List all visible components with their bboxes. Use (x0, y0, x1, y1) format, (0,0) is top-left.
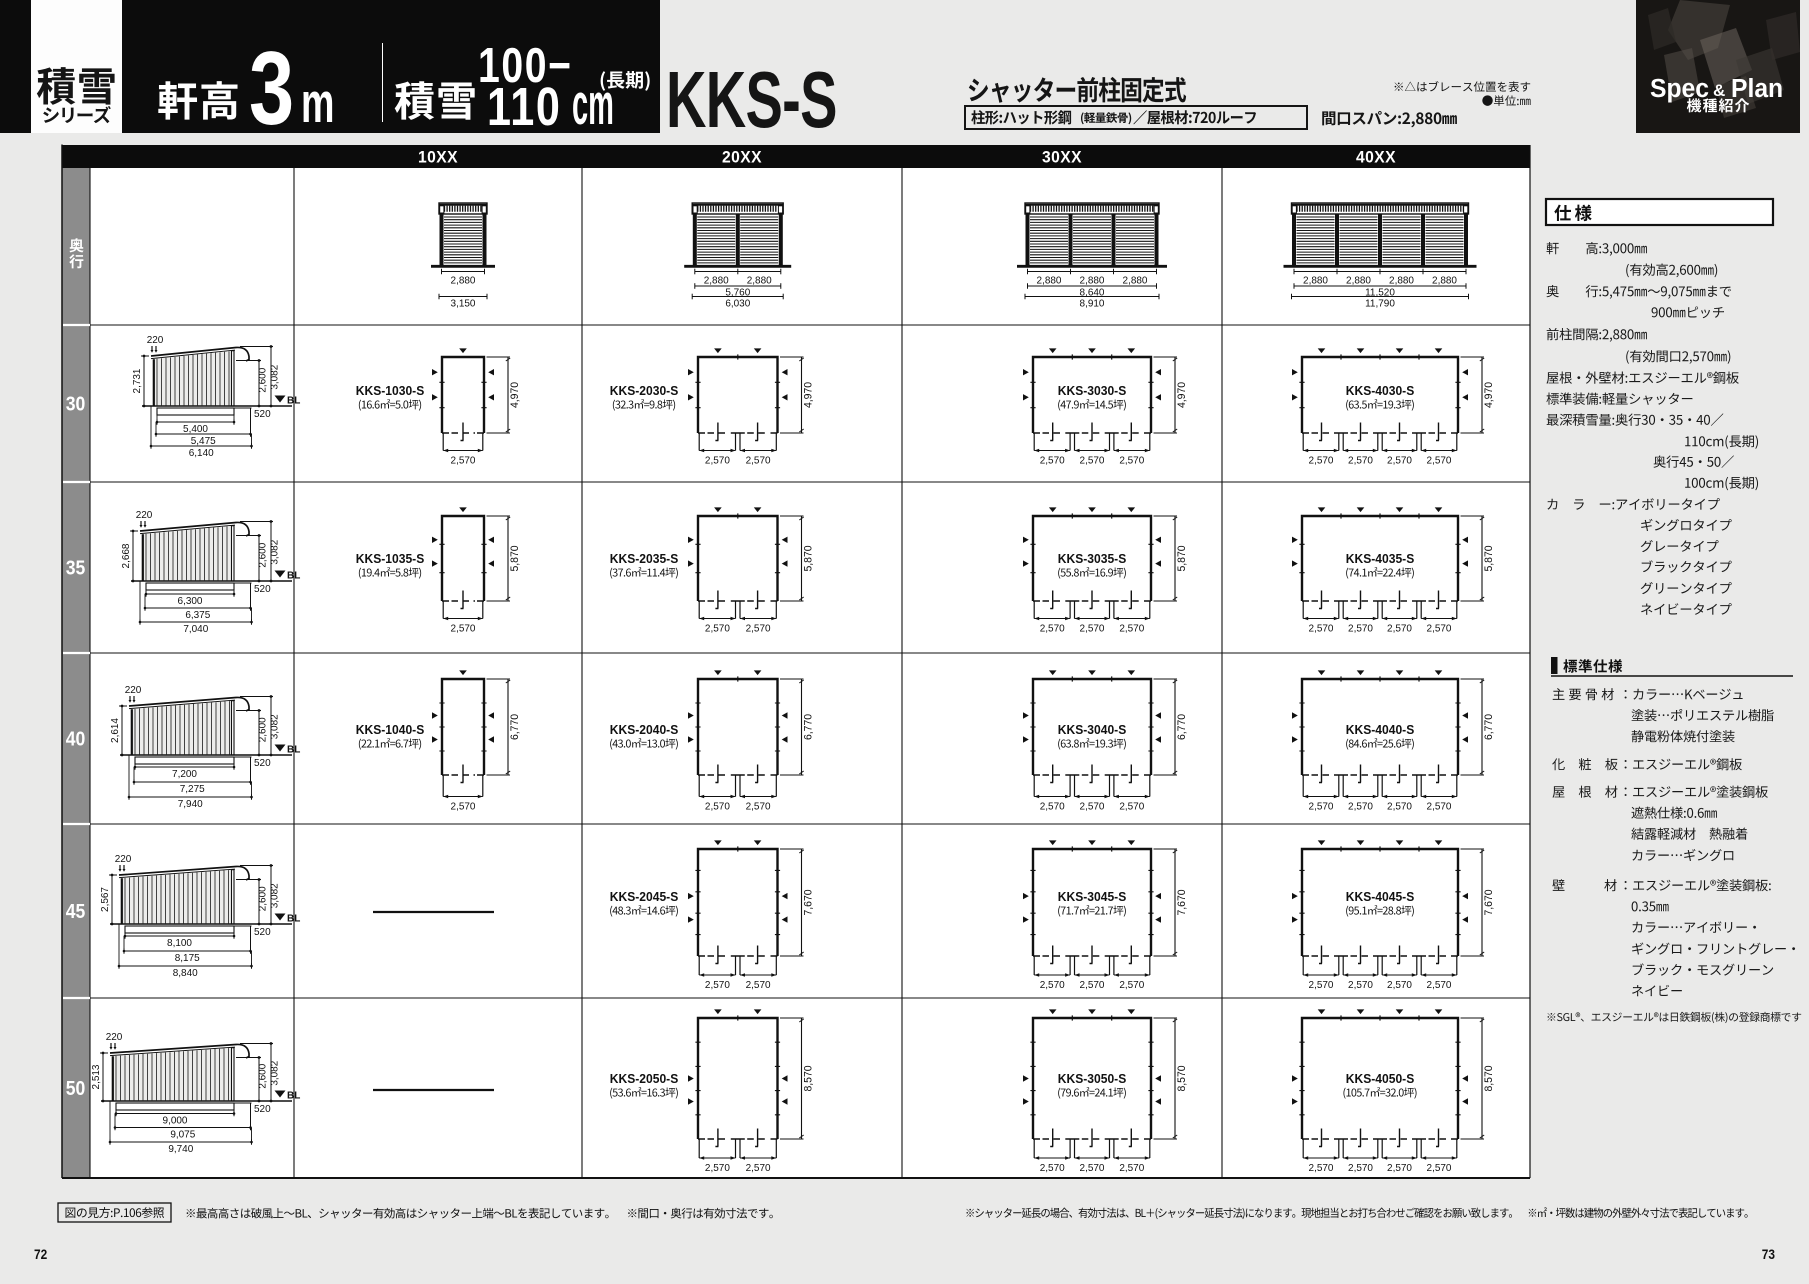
svg-text:2,570: 2,570 (451, 623, 476, 634)
svg-text:m: m (301, 71, 334, 135)
svg-text:2,570: 2,570 (1080, 801, 1105, 812)
svg-text:220: 220 (147, 335, 164, 346)
svg-text:2,570: 2,570 (1309, 801, 1334, 812)
svg-text:520: 520 (254, 1104, 271, 1115)
svg-text:2,570: 2,570 (705, 980, 730, 991)
svg-text:2,570: 2,570 (1348, 1163, 1373, 1174)
svg-text:2,570: 2,570 (1387, 455, 1412, 466)
svg-text:50: 50 (66, 1077, 86, 1099)
svg-text:7,040: 7,040 (183, 624, 208, 635)
svg-text:2,880: 2,880 (451, 275, 476, 286)
svg-text:5,870: 5,870 (1483, 545, 1495, 571)
svg-text:2,570: 2,570 (705, 623, 730, 634)
svg-text:2,880: 2,880 (747, 275, 772, 286)
svg-text:8,570: 8,570 (802, 1065, 814, 1091)
svg-text:2,600: 2,600 (257, 542, 268, 567)
svg-text:2,570: 2,570 (1427, 455, 1452, 466)
svg-text:220: 220 (136, 510, 153, 521)
svg-text:2,880: 2,880 (704, 275, 729, 286)
svg-text:3,082: 3,082 (269, 883, 280, 908)
svg-text:2,570: 2,570 (451, 455, 476, 466)
svg-text:2,570: 2,570 (1119, 980, 1144, 991)
svg-text:KKS-1040-S: KKS-1040-S (356, 723, 425, 737)
svg-text:Spec: Spec (1650, 74, 1709, 103)
svg-text:5,870: 5,870 (509, 545, 521, 571)
svg-text:2,570: 2,570 (451, 801, 476, 812)
svg-text:2,570: 2,570 (746, 1163, 771, 1174)
svg-text:110: 110 (487, 78, 561, 138)
svg-text:2,570: 2,570 (746, 623, 771, 634)
svg-text:4,970: 4,970 (802, 382, 814, 408)
svg-text:8,910: 8,910 (1080, 298, 1105, 309)
svg-text:KKS-3040-S: KKS-3040-S (1058, 723, 1127, 737)
svg-text:2,570: 2,570 (1427, 980, 1452, 991)
svg-text:7,940: 7,940 (178, 799, 203, 810)
svg-text:520: 520 (254, 584, 271, 595)
svg-text:2,570: 2,570 (1119, 801, 1144, 812)
svg-text:4,970: 4,970 (1483, 382, 1495, 408)
svg-text:3,082: 3,082 (269, 539, 280, 564)
svg-text:9,000: 9,000 (163, 1115, 188, 1126)
svg-text:2,880: 2,880 (1432, 275, 1457, 286)
svg-text:8,175: 8,175 (175, 953, 200, 964)
svg-text:8,570: 8,570 (1176, 1065, 1188, 1091)
svg-text:40XX: 40XX (1356, 148, 1396, 167)
svg-text:2,570: 2,570 (1309, 1163, 1334, 1174)
svg-text:KKS-2040-S: KKS-2040-S (610, 723, 679, 737)
svg-text:4,970: 4,970 (509, 382, 521, 408)
svg-text:45: 45 (66, 900, 86, 922)
svg-text:KKS-3045-S: KKS-3045-S (1058, 890, 1127, 904)
svg-text:2,570: 2,570 (705, 1163, 730, 1174)
svg-text:2,570: 2,570 (1309, 980, 1334, 991)
svg-text:6,770: 6,770 (509, 714, 521, 740)
svg-text:6,770: 6,770 (1483, 714, 1495, 740)
svg-text:KKS-2035-S: KKS-2035-S (610, 552, 679, 566)
svg-text:2,570: 2,570 (1040, 980, 1065, 991)
svg-text:2,570: 2,570 (1040, 455, 1065, 466)
svg-text:5,870: 5,870 (1176, 545, 1188, 571)
svg-text:6,030: 6,030 (725, 298, 750, 309)
svg-text:10XX: 10XX (418, 148, 458, 167)
svg-text:BL: BL (287, 913, 300, 924)
svg-text:2,570: 2,570 (1348, 980, 1373, 991)
svg-text:KKS-2050-S: KKS-2050-S (610, 1072, 679, 1086)
svg-text:30XX: 30XX (1042, 148, 1082, 167)
svg-text:6,770: 6,770 (802, 714, 814, 740)
svg-text:7,670: 7,670 (1176, 889, 1188, 915)
svg-text:6,140: 6,140 (189, 448, 214, 459)
svg-text:20XX: 20XX (722, 148, 762, 167)
svg-text:2,570: 2,570 (1348, 455, 1373, 466)
svg-text:2,570: 2,570 (1427, 1163, 1452, 1174)
svg-text:KKS-4030-S: KKS-4030-S (1346, 384, 1415, 398)
svg-text:73: 73 (1762, 1246, 1775, 1262)
svg-text:5,475: 5,475 (191, 436, 216, 447)
svg-text:220: 220 (115, 854, 132, 865)
svg-text:6,770: 6,770 (1176, 714, 1188, 740)
svg-text:220: 220 (125, 685, 142, 696)
svg-text:2,668: 2,668 (121, 543, 132, 568)
svg-text:9,075: 9,075 (170, 1129, 195, 1140)
svg-text:2,570: 2,570 (1387, 801, 1412, 812)
svg-text:3,082: 3,082 (269, 714, 280, 739)
svg-text:BL: BL (287, 395, 300, 406)
svg-text:BL: BL (287, 744, 300, 755)
svg-text:KKS-4050-S: KKS-4050-S (1346, 1072, 1415, 1086)
svg-text:2,570: 2,570 (1040, 1163, 1065, 1174)
svg-text:2,570: 2,570 (1080, 623, 1105, 634)
svg-text:KKS-3050-S: KKS-3050-S (1058, 1072, 1127, 1086)
svg-text:2,880: 2,880 (1123, 275, 1148, 286)
svg-text:2,570: 2,570 (705, 801, 730, 812)
svg-text:6,375: 6,375 (185, 610, 210, 621)
svg-text:KKS-4040-S: KKS-4040-S (1346, 723, 1415, 737)
svg-text:2,880: 2,880 (1037, 275, 1062, 286)
svg-text:2,513: 2,513 (91, 1064, 102, 1089)
svg-text:9,740: 9,740 (168, 1144, 193, 1155)
svg-text:2,570: 2,570 (1348, 801, 1373, 812)
svg-text:2,570: 2,570 (746, 801, 771, 812)
svg-text:2,600: 2,600 (257, 367, 268, 392)
svg-text:KKS-3030-S: KKS-3030-S (1058, 384, 1127, 398)
svg-text:2,570: 2,570 (1348, 623, 1373, 634)
svg-text:2,570: 2,570 (1427, 623, 1452, 634)
svg-text:8,840: 8,840 (173, 968, 198, 979)
svg-text:5,870: 5,870 (802, 545, 814, 571)
svg-text:7,670: 7,670 (1483, 889, 1495, 915)
svg-text:2,880: 2,880 (1346, 275, 1371, 286)
svg-text:2,600: 2,600 (257, 1063, 268, 1088)
svg-text:2,570: 2,570 (1387, 1163, 1412, 1174)
svg-text:8,570: 8,570 (1483, 1065, 1495, 1091)
svg-text:520: 520 (254, 927, 271, 938)
svg-text:KKS-4035-S: KKS-4035-S (1346, 552, 1415, 566)
svg-text:3,082: 3,082 (269, 1060, 280, 1085)
svg-text:2,570: 2,570 (1119, 623, 1144, 634)
svg-text:KKS-1030-S: KKS-1030-S (356, 384, 425, 398)
svg-text:2,570: 2,570 (1309, 455, 1334, 466)
svg-text:BL: BL (287, 570, 300, 581)
svg-text:35: 35 (66, 556, 86, 578)
svg-text:2,880: 2,880 (1080, 275, 1105, 286)
svg-text:72: 72 (34, 1246, 47, 1262)
svg-text:3,150: 3,150 (451, 298, 476, 309)
svg-text:30: 30 (66, 392, 86, 414)
svg-text:220: 220 (106, 1032, 123, 1043)
svg-text:2,570: 2,570 (746, 455, 771, 466)
svg-text:40: 40 (66, 727, 86, 749)
svg-text:2,880: 2,880 (1389, 275, 1414, 286)
svg-text:KKS-S: KKS-S (666, 54, 837, 144)
svg-text:2,570: 2,570 (746, 980, 771, 991)
svg-text:2,570: 2,570 (1080, 1163, 1105, 1174)
svg-text:2,570: 2,570 (1387, 980, 1412, 991)
svg-text:2,570: 2,570 (1040, 801, 1065, 812)
svg-text:5,400: 5,400 (183, 424, 208, 435)
svg-text:KKS-2045-S: KKS-2045-S (610, 890, 679, 904)
svg-text:2,600: 2,600 (257, 717, 268, 742)
svg-text:2,570: 2,570 (1119, 455, 1144, 466)
svg-text:3: 3 (249, 30, 294, 146)
svg-text:2,570: 2,570 (705, 455, 730, 466)
svg-text:6,300: 6,300 (178, 596, 203, 607)
svg-text:2,880: 2,880 (1303, 275, 1328, 286)
svg-text:2,570: 2,570 (1387, 623, 1412, 634)
svg-text:KKS-4045-S: KKS-4045-S (1346, 890, 1415, 904)
svg-text:520: 520 (254, 758, 271, 769)
svg-text:2,570: 2,570 (1080, 455, 1105, 466)
svg-text:2,567: 2,567 (100, 887, 111, 912)
svg-text:KKS-2030-S: KKS-2030-S (610, 384, 679, 398)
svg-text:2,614: 2,614 (110, 718, 121, 743)
svg-text:4,970: 4,970 (1176, 382, 1188, 408)
svg-text:3,082: 3,082 (269, 364, 280, 389)
svg-text:8,100: 8,100 (167, 938, 192, 949)
svg-text:2,570: 2,570 (1119, 1163, 1144, 1174)
svg-text:2,570: 2,570 (1309, 623, 1334, 634)
svg-text:520: 520 (254, 409, 271, 420)
svg-text:KKS-3035-S: KKS-3035-S (1058, 552, 1127, 566)
svg-text:11,790: 11,790 (1365, 298, 1395, 309)
svg-text:2,570: 2,570 (1080, 980, 1105, 991)
svg-text:2,570: 2,570 (1427, 801, 1452, 812)
svg-text:2,570: 2,570 (1040, 623, 1065, 634)
svg-text:2,600: 2,600 (257, 886, 268, 911)
svg-text:KKS-1035-S: KKS-1035-S (356, 552, 425, 566)
svg-text:7,670: 7,670 (802, 889, 814, 915)
svg-text:2,731: 2,731 (132, 368, 143, 393)
svg-text:7,275: 7,275 (180, 784, 205, 795)
svg-text:&: & (1713, 81, 1725, 100)
svg-text:BL: BL (287, 1090, 300, 1101)
svg-text:7,200: 7,200 (172, 769, 197, 780)
svg-text:Plan: Plan (1731, 74, 1783, 103)
